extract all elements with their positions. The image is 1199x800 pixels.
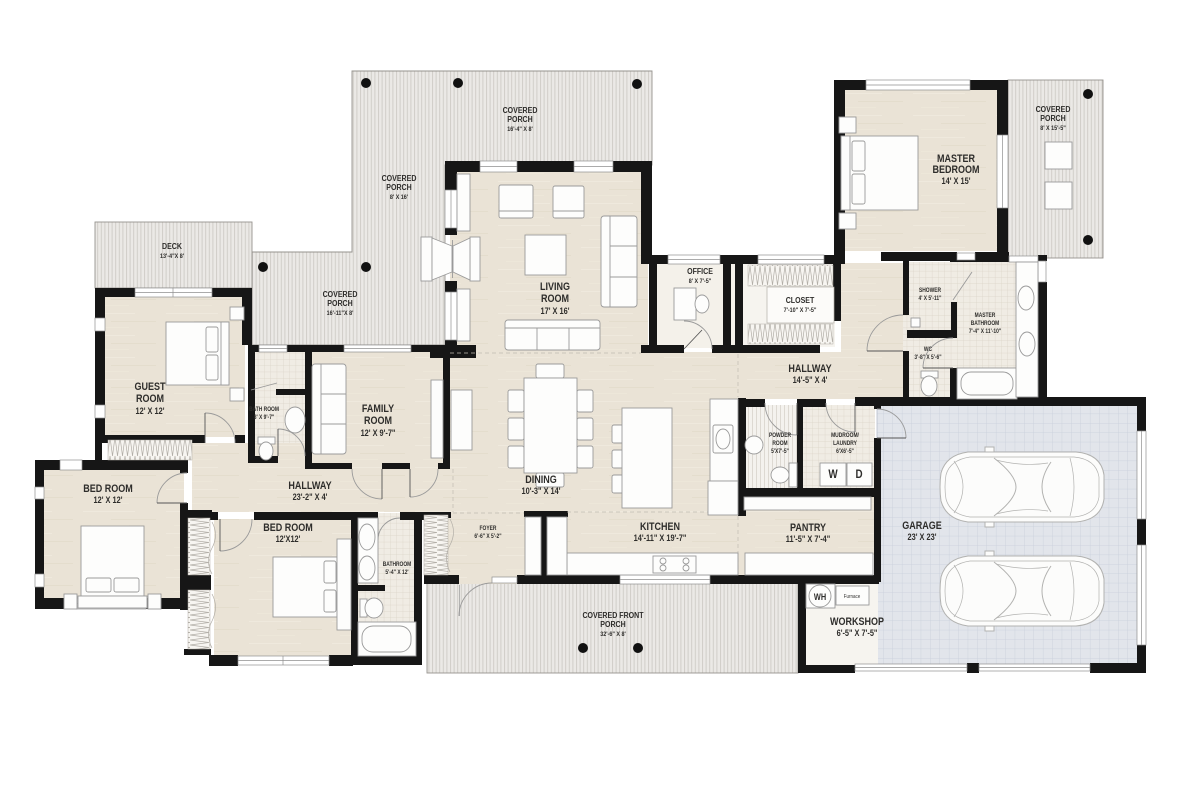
svg-text:PORCH: PORCH [386, 182, 412, 192]
svg-text:17' X 16': 17' X 16' [541, 306, 570, 316]
svg-text:PORCH: PORCH [507, 114, 533, 124]
svg-text:CLOSET: CLOSET [786, 295, 815, 305]
svg-text:12' X 9'-7": 12' X 9'-7" [361, 428, 396, 438]
svg-text:8' X 15'-5": 8' X 15'-5" [1040, 126, 1066, 133]
svg-text:8' X 16': 8' X 16' [390, 195, 409, 202]
svg-text:SHOWER: SHOWER [919, 288, 941, 295]
svg-text:PORCH: PORCH [600, 619, 626, 629]
svg-text:GARAGE: GARAGE [902, 520, 942, 532]
svg-text:BATHROOM: BATHROOM [971, 321, 1000, 328]
svg-text:BEDROOM: BEDROOM [932, 164, 979, 176]
svg-text:4' X 5'-11": 4' X 5'-11" [919, 296, 942, 303]
svg-text:14'-5" X 4': 14'-5" X 4' [793, 375, 828, 385]
svg-text:14'-11" X 19'-7": 14'-11" X 19'-7" [634, 533, 687, 543]
svg-text:FAMILY: FAMILY [362, 403, 394, 415]
svg-text:14' X 15': 14' X 15' [942, 176, 971, 186]
svg-text:BED ROOM: BED ROOM [263, 522, 313, 534]
svg-text:23' X 23': 23' X 23' [908, 532, 937, 542]
svg-text:FOYER: FOYER [480, 526, 497, 533]
svg-text:POWDER: POWDER [769, 433, 791, 440]
svg-text:PORCH: PORCH [327, 298, 353, 308]
svg-text:BATHROOM: BATHROOM [383, 562, 412, 569]
svg-text:MUDROOM/: MUDROOM/ [831, 433, 859, 440]
svg-text:23'-2" X 4': 23'-2" X 4' [293, 492, 328, 502]
svg-text:DINING: DINING [525, 474, 557, 486]
svg-text:6'-6" X 5'-2": 6'-6" X 5'-2" [474, 534, 502, 541]
svg-text:D: D [855, 468, 862, 481]
svg-text:PANTRY: PANTRY [790, 522, 826, 534]
svg-text:ROOM: ROOM [136, 393, 164, 405]
svg-text:5'X7'-5": 5'X7'-5" [771, 449, 789, 456]
svg-text:BED ROOM: BED ROOM [83, 483, 133, 495]
svg-text:32'-6" X 8': 32'-6" X 8' [600, 632, 626, 639]
svg-text:HALLWAY: HALLWAY [288, 480, 331, 492]
svg-text:13'-4"X 8': 13'-4"X 8' [160, 254, 185, 261]
svg-text:6'-5" X 7'-5": 6'-5" X 7'-5" [837, 628, 878, 638]
svg-text:11'-5" X 7'-4": 11'-5" X 7'-4" [786, 534, 831, 544]
svg-text:12' X 12': 12' X 12' [94, 495, 123, 505]
svg-text:5'-4" X 12': 5'-4" X 12' [385, 570, 409, 577]
svg-text:HALLWAY: HALLWAY [788, 363, 831, 375]
svg-text:GUEST: GUEST [134, 381, 166, 393]
svg-text:7'-10" X 7'-5": 7'-10" X 7'-5" [784, 308, 817, 315]
svg-text:ROOM: ROOM [364, 415, 392, 427]
svg-text:LIVING: LIVING [540, 281, 570, 293]
svg-text:6'X6'-5": 6'X6'-5" [836, 449, 854, 456]
svg-text:ROOM: ROOM [772, 441, 788, 448]
svg-text:WORKSHOP: WORKSHOP [830, 616, 884, 628]
svg-text:12'X12': 12'X12' [276, 534, 301, 544]
svg-text:WH: WH [814, 592, 826, 602]
svg-text:12' X 12': 12' X 12' [136, 406, 165, 416]
svg-text:KITCHEN: KITCHEN [640, 521, 680, 533]
svg-text:PORCH: PORCH [1040, 113, 1066, 123]
svg-text:W: W [828, 468, 838, 481]
svg-text:OFFICE: OFFICE [687, 266, 713, 276]
svg-text:WC: WC [924, 347, 932, 354]
svg-text:16'-11"X 8': 16'-11"X 8' [327, 311, 354, 318]
svg-text:DECK: DECK [162, 241, 182, 251]
svg-text:7'-4" X 11'-10": 7'-4" X 11'-10" [969, 329, 1002, 336]
svg-text:16'-4" X 8': 16'-4" X 8' [507, 127, 533, 134]
svg-text:10'-3" X 14': 10'-3" X 14' [522, 486, 561, 496]
svg-text:8' X 9'-7": 8' X 9'-7" [254, 415, 275, 422]
svg-text:ROOM: ROOM [541, 293, 569, 305]
svg-text:MASTER: MASTER [975, 313, 996, 320]
svg-text:BATH ROOM: BATH ROOM [249, 407, 279, 414]
svg-text:3'-8" X 5'-6": 3'-8" X 5'-6" [914, 355, 942, 362]
svg-text:LAUNDRY: LAUNDRY [833, 441, 857, 448]
svg-text:Furnace: Furnace [844, 594, 861, 601]
svg-text:8' X 7'-5": 8' X 7'-5" [689, 279, 712, 286]
